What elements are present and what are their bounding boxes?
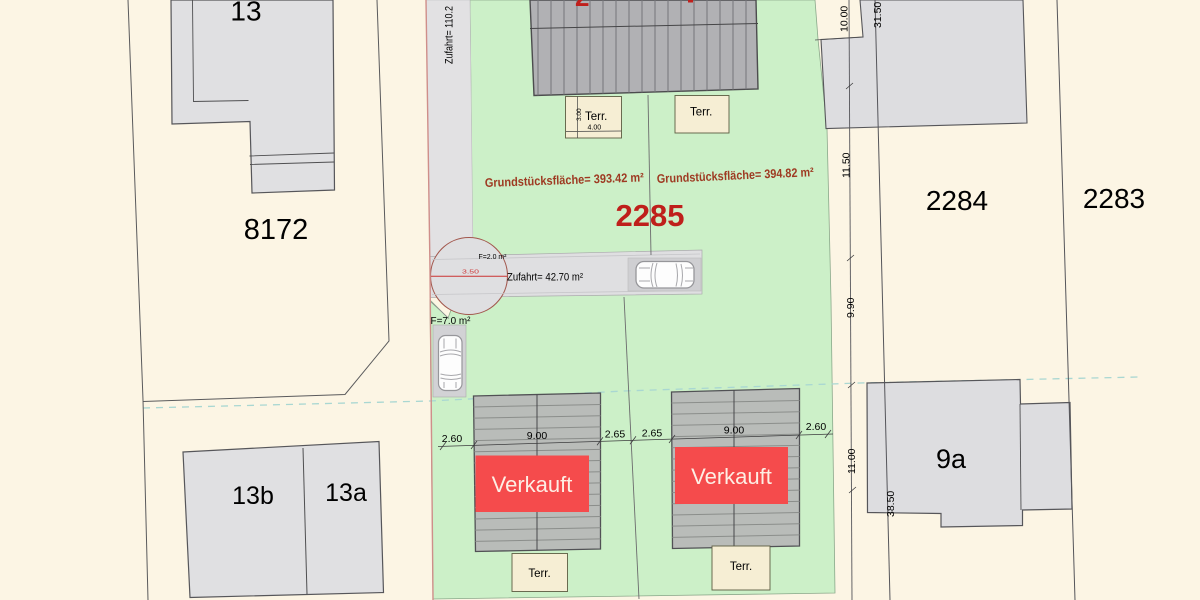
svg-text:13: 13 <box>230 0 261 27</box>
svg-text:2: 2 <box>575 0 589 12</box>
svg-text:9a: 9a <box>936 444 967 474</box>
svg-text:2283: 2283 <box>1083 183 1145 214</box>
svg-text:2284: 2284 <box>926 185 988 216</box>
svg-text:13b: 13b <box>232 482 274 510</box>
svg-text:31.50: 31.50 <box>872 2 884 28</box>
svg-text:F=2.0 m²: F=2.0 m² <box>479 252 507 261</box>
svg-text:Terr.: Terr. <box>585 111 607 123</box>
svg-text:Terr.: Terr. <box>690 107 712 119</box>
svg-text:2.60: 2.60 <box>442 433 463 445</box>
svg-text:2.65: 2.65 <box>605 429 626 441</box>
svg-text:F=7.0 m²: F=7.0 m² <box>431 315 471 327</box>
svg-text:9.00: 9.00 <box>724 425 745 437</box>
svg-text:Verkauft: Verkauft <box>492 472 573 497</box>
svg-text:4.00: 4.00 <box>588 125 602 132</box>
svg-text:Zufahrt= 110.2: Zufahrt= 110.2 <box>444 6 456 64</box>
svg-text:9.00: 9.00 <box>527 430 548 442</box>
svg-text:3.50: 3.50 <box>462 270 479 276</box>
svg-text:13a: 13a <box>325 479 367 507</box>
svg-text:Terr.: Terr. <box>528 568 550 580</box>
svg-text:2.65: 2.65 <box>642 428 663 440</box>
svg-text:38.50: 38.50 <box>885 491 897 517</box>
svg-text:9.90: 9.90 <box>845 297 857 318</box>
svg-text:8172: 8172 <box>244 214 309 246</box>
svg-text:Verkauft: Verkauft <box>691 464 772 489</box>
svg-text:3.00: 3.00 <box>576 108 583 121</box>
svg-text:2285: 2285 <box>616 198 685 233</box>
svg-text:11.50: 11.50 <box>841 152 853 178</box>
svg-text:2.60: 2.60 <box>806 421 827 433</box>
svg-text:Terr.: Terr. <box>730 561 752 573</box>
svg-text:10.00: 10.00 <box>839 6 851 32</box>
svg-text:Zufahrt= 42.70 m²: Zufahrt= 42.70 m² <box>507 272 583 284</box>
svg-text:11.00: 11.00 <box>846 448 858 474</box>
